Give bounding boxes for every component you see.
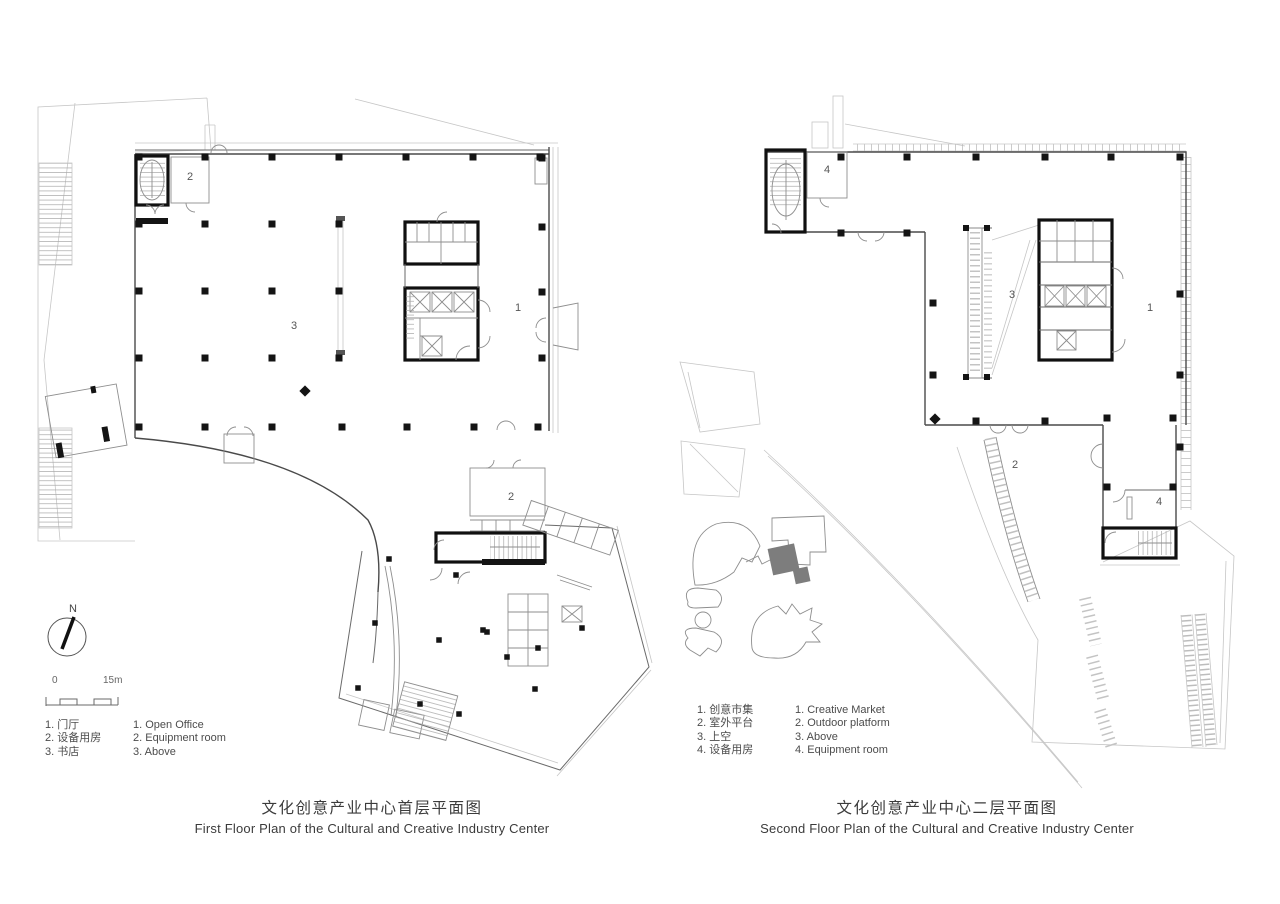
second-floor-columns (838, 154, 1184, 491)
room-label-first-floor-equipment: 2 (187, 171, 193, 183)
central-core-right (1039, 220, 1125, 360)
first-floor-title-zh: 文化创意产业中心首层平面图 (152, 796, 592, 818)
first-floor-title: 文化创意产业中心首层平面图 First Floor Plan of the Cu… (152, 796, 592, 836)
room-label-first-floor-equipment-south: 2 (508, 491, 514, 503)
south-room-and-stair-core (430, 460, 545, 584)
first-floor-title-en: First Floor Plan of the Cultural and Cre… (152, 821, 592, 836)
hall-escalator (963, 225, 1039, 380)
legend-item: 1. 门厅 (45, 719, 101, 732)
central-elevator-core (405, 264, 490, 360)
floor-plan-sheet: N 0 15m 2 3 1 2 4 3 1 2 4 1. 门厅 2. 设备用房 … (0, 0, 1280, 904)
north-arrow (48, 617, 86, 656)
central-toilet-core (405, 212, 478, 264)
room-label-second-floor-market: 1 (1147, 302, 1153, 314)
legend-item: 3. Above (795, 731, 890, 744)
northwest-stair-core-right (766, 150, 847, 233)
south-leg-stair-core (1100, 528, 1180, 565)
north-label: N (69, 603, 77, 615)
legend-item: 4. Equipment room (795, 744, 890, 757)
curtain-wall-hatch (853, 144, 1191, 510)
room-label-first-floor-bookstore: 3 (291, 320, 297, 332)
scale-bar (46, 697, 118, 706)
legend-item: 1. Open Office (133, 719, 226, 732)
first-floor-legend-zh: 1. 门厅 2. 设备用房 3. 书店 (45, 719, 101, 759)
first-floor-columns (136, 154, 585, 717)
room-label-second-floor-equipment-nw: 4 (824, 164, 830, 176)
legend-item: 3. Above (133, 746, 226, 759)
legend-item: 2. 设备用房 (45, 732, 101, 745)
second-floor-plan-drawing (680, 96, 1234, 788)
second-floor-title: 文化创意产业中心二层平面图 Second Floor Plan of the C… (727, 796, 1167, 836)
first-floor-legend-en: 1. Open Office 2. Equipment room 3. Abov… (133, 719, 226, 759)
second-floor-title-zh: 文化创意产业中心二层平面图 (727, 796, 1167, 818)
second-floor-title-en: Second Floor Plan of the Cultural and Cr… (727, 821, 1167, 836)
plan-linework (0, 0, 1280, 904)
legend-item: 2. Equipment room (133, 732, 226, 745)
second-floor-walls (766, 152, 1186, 528)
second-floor-legend-zh: 1. 创意市集 2. 室外平台 3. 上空 4. 设备用房 (697, 704, 753, 758)
key-map (685, 516, 826, 658)
legend-item: 1. 创意市集 (697, 704, 753, 717)
second-floor-legend-en: 1. Creative Market 2. Outdoor platform 3… (795, 704, 890, 758)
room-label-first-floor-lobby: 1 (515, 302, 521, 314)
room-label-second-floor-platform: 2 (1012, 459, 1018, 471)
scale-end-label: 15m (103, 675, 122, 686)
detached-annex (45, 382, 127, 459)
legend-item: 3. 上空 (697, 731, 753, 744)
room-label-second-floor-above: 3 (1009, 289, 1015, 301)
room-label-second-floor-equipment-s: 4 (1156, 496, 1162, 508)
first-floor-plan-drawing (38, 98, 652, 776)
legend-item: 4. 设备用房 (697, 744, 753, 757)
legend-item: 3. 书店 (45, 746, 101, 759)
site-context-lines-right (680, 96, 1234, 788)
northwest-stair-core (136, 156, 209, 224)
scale-start-label: 0 (52, 675, 58, 686)
legend-item: 1. Creative Market (795, 704, 890, 717)
legend-item: 2. 室外平台 (697, 717, 753, 730)
legend-item: 2. Outdoor platform (795, 717, 890, 730)
